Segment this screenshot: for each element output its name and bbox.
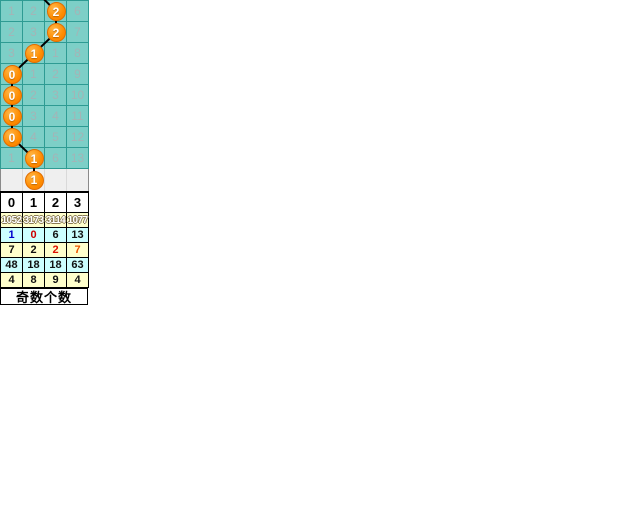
miss-cell: 6 [45, 148, 67, 169]
stats-cell: 63 [67, 258, 89, 273]
stats-row: 10613 [0, 228, 89, 243]
stats-cell: 18 [45, 258, 67, 273]
stats-cell: 8 [23, 273, 45, 288]
stats-row: 7227 [0, 243, 89, 258]
miss-cell: 3 [1, 43, 23, 64]
miss-cell [1, 106, 23, 127]
miss-cell [23, 43, 45, 64]
stats-cell: 7 [1, 243, 23, 258]
miss-cell: 12 [67, 127, 89, 148]
miss-cell [45, 1, 67, 22]
miss-cell: 11 [67, 106, 89, 127]
miss-cell [23, 148, 45, 169]
miss-cell [45, 22, 67, 43]
miss-value-grid: 1262373181292310341145121613 [0, 0, 89, 169]
stats-cell: 2 [45, 243, 67, 258]
miss-cell [1, 64, 23, 85]
miss-cell: 7 [67, 22, 89, 43]
miss-cell: 4 [45, 106, 67, 127]
stats-cell: 13 [67, 228, 89, 243]
stats-cell: 3173 [23, 213, 45, 228]
column-header-cell: 1 [23, 193, 45, 213]
stats-cell: 1 [1, 228, 23, 243]
miss-cell: 2 [45, 64, 67, 85]
miss-cell: 8 [67, 43, 89, 64]
stats-row: 4894 [0, 273, 89, 288]
pending-draw-row [0, 169, 89, 191]
miss-cell: 2 [23, 1, 45, 22]
miss-cell: 13 [67, 148, 89, 169]
pending-cell [1, 169, 23, 191]
miss-cell: 3 [45, 85, 67, 106]
stats-cell: 1052 [1, 213, 23, 228]
stats-cell: 6 [45, 228, 67, 243]
miss-cell: 3 [23, 106, 45, 127]
stats-cell: 4 [1, 273, 23, 288]
miss-cell: 1 [1, 1, 23, 22]
stats-cell: 3114 [45, 213, 67, 228]
miss-cell: 1 [1, 148, 23, 169]
stats-row: 1052317331141077 [0, 213, 89, 228]
miss-cell: 1 [23, 64, 45, 85]
pending-cell [67, 169, 89, 191]
odd-count-trend-table: 1262373181292310341145121613 0123 105231… [0, 0, 89, 305]
miss-cell: 6 [67, 1, 89, 22]
stats-section: 1052317331141077106137227481818634894 [0, 213, 89, 288]
miss-cell: 4 [23, 127, 45, 148]
pending-cell [23, 169, 45, 191]
miss-cell: 10 [67, 85, 89, 106]
pending-cell [45, 169, 67, 191]
miss-cell: 1 [45, 43, 67, 64]
stats-cell: 18 [23, 258, 45, 273]
miss-cell: 2 [1, 22, 23, 43]
miss-cell [1, 127, 23, 148]
stats-cell: 48 [1, 258, 23, 273]
miss-cell: 3 [23, 22, 45, 43]
stats-cell: 1077 [67, 213, 89, 228]
stats-cell: 9 [45, 273, 67, 288]
miss-cell: 9 [67, 64, 89, 85]
column-header-row: 0123 [0, 191, 89, 213]
miss-cell: 5 [45, 127, 67, 148]
column-header-cell: 3 [67, 193, 89, 213]
stats-cell: 4 [67, 273, 89, 288]
column-header-cell: 2 [45, 193, 67, 213]
stats-cell: 7 [67, 243, 89, 258]
miss-cell [1, 85, 23, 106]
miss-cell: 2 [23, 85, 45, 106]
table-title-text: 奇数个数 [16, 287, 72, 306]
stats-row: 48181863 [0, 258, 89, 273]
stats-cell: 2 [23, 243, 45, 258]
table-title-row: 奇数个数 [0, 288, 88, 305]
stats-cell: 0 [23, 228, 45, 243]
column-header-cell: 0 [1, 193, 23, 213]
page: 1262373181292310341145121613 0123 105231… [0, 0, 640, 512]
